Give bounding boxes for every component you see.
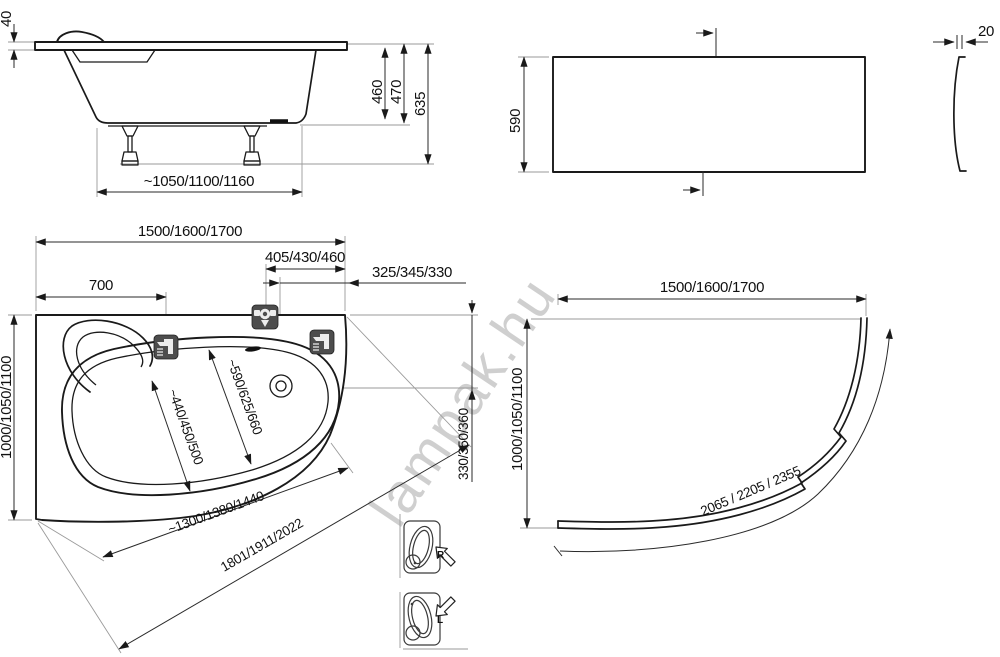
leg-right: [244, 126, 260, 165]
dim-mixer-offset: 405/430/460: [265, 249, 345, 266]
panel-thickness-ticks: [957, 35, 962, 49]
dim-leg-spacing: ~1050/1100/1160: [144, 173, 254, 190]
corner-panel-outer-edge: [558, 318, 867, 529]
dim-left-tap-offset: 700: [89, 277, 113, 294]
left-label: L: [437, 615, 443, 626]
mixer-tap-icon: [252, 305, 278, 329]
dim-width: 1000/1050/1100: [0, 356, 15, 459]
right-arrow-icon: [431, 542, 458, 569]
watermark: lampak.hu: [357, 265, 569, 537]
bathtub-side-outline: [64, 50, 316, 123]
corner-panel-view: 1500/1600/1700 1000/1050/1100 2065 / 220…: [509, 279, 890, 556]
technical-drawing-page: lampak.hu 40 460: [0, 0, 1000, 657]
side-tap-icon-left: [154, 335, 178, 359]
dim-panel-width: 1000/1050/1100: [509, 368, 526, 471]
side-view: 40 460 470 635 ~1050/1100/1160: [0, 11, 434, 197]
headrest-profile: [57, 31, 104, 42]
dim-total-height: 635: [412, 92, 429, 116]
leg-left: [122, 126, 138, 165]
dim-drain-from-edge: 330/350/360: [456, 408, 471, 480]
dim-inner-depth: 460: [369, 80, 386, 104]
left-arrow-icon: [431, 594, 458, 621]
dim-drain-offset: 325/345/330: [372, 264, 452, 281]
front-panel-outline: [553, 57, 865, 172]
rim-profile: [35, 42, 347, 50]
dim-panel-thickness: 20: [978, 23, 994, 40]
bathtub-technical-drawing: lampak.hu 40 460: [0, 0, 1000, 657]
panel-cross-section: [954, 57, 966, 171]
seat-recess-profile: [72, 50, 155, 62]
dim-rim-height: 40: [0, 11, 15, 27]
dim-panel-height: 590: [507, 109, 524, 133]
right-label: R: [437, 550, 445, 561]
side-tap-icon-right: [310, 330, 334, 354]
corner-panel-inner-edge: [558, 318, 861, 522]
dim-panel-length: 1500/1600/1700: [660, 279, 764, 296]
dim-length: 1500/1600/1700: [138, 223, 242, 240]
dim-shell-height: 470: [388, 80, 405, 104]
left-version-icon: L: [404, 593, 458, 645]
front-panel-view: 590 20: [507, 23, 994, 196]
corner-panel-extension-lines: [520, 294, 866, 528]
